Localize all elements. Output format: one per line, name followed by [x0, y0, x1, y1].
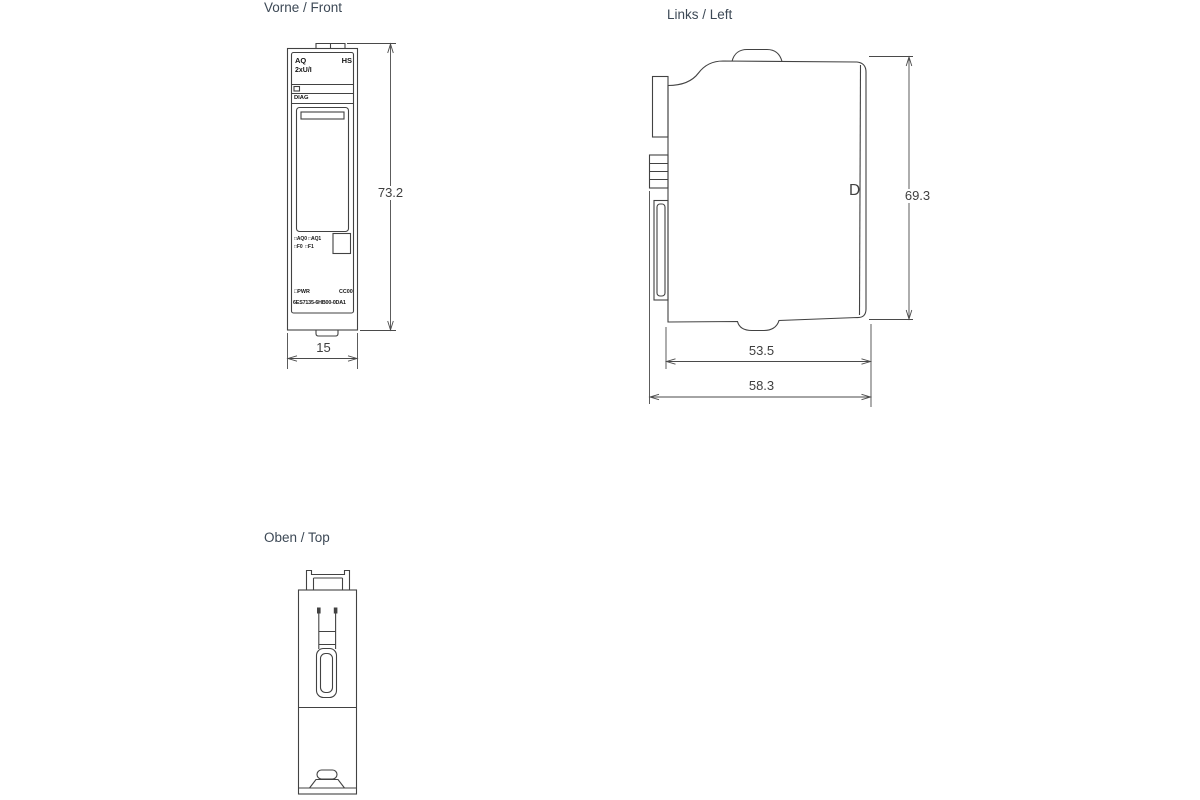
- front-view-title: Vorne / Front: [264, 0, 342, 15]
- coding-element-box: [333, 234, 351, 254]
- top-view-title: Oben / Top: [264, 530, 330, 545]
- diag-led-box: [294, 87, 300, 92]
- top-view-drawing: [299, 571, 357, 795]
- bottom-detail-wedge: [310, 780, 345, 789]
- label-window: [297, 108, 349, 232]
- line-art: [0, 0, 1200, 800]
- left-view-drawing: [650, 50, 867, 331]
- module-type-label: AQ: [295, 56, 306, 65]
- housing-outline: [668, 61, 866, 331]
- dim-left-depth-inner: 53.5: [740, 344, 783, 358]
- din-rail-clip: [732, 50, 782, 62]
- pwr-led-label: □PWR: [294, 289, 310, 295]
- drawing-canvas: Vorne / Front Links / Left Oben / Top 73…: [0, 0, 1200, 800]
- mounting-foot: [316, 330, 338, 336]
- dim-front-width: 15: [302, 341, 345, 355]
- release-slot: [317, 649, 337, 698]
- bottom-detail-oval: [317, 770, 337, 779]
- dim-left-depth-total: 58.3: [740, 379, 783, 393]
- module-channels-label: 2xU/I: [295, 67, 312, 74]
- dim-left-height: 69.3: [896, 189, 939, 203]
- front-dimension-lines: [288, 44, 397, 370]
- left-view-title: Links / Left: [667, 7, 732, 22]
- dim-front-height: 73.2: [369, 186, 412, 200]
- bus-connector: [654, 201, 668, 301]
- article-number: 6ES7135-6HB00-0DA1: [293, 300, 346, 306]
- module-class-label: HS: [338, 56, 352, 65]
- coding-label: CC00: [339, 289, 353, 295]
- channel-led-labels-row2: □F0 □F1: [294, 244, 314, 250]
- upper-left-lug: [653, 77, 669, 138]
- front-panel: [292, 53, 354, 314]
- channel-led-labels-row1: □AQ0 □AQ1: [294, 236, 321, 242]
- diag-led-label: DIAG: [294, 95, 309, 101]
- housing-letter: D: [849, 182, 860, 200]
